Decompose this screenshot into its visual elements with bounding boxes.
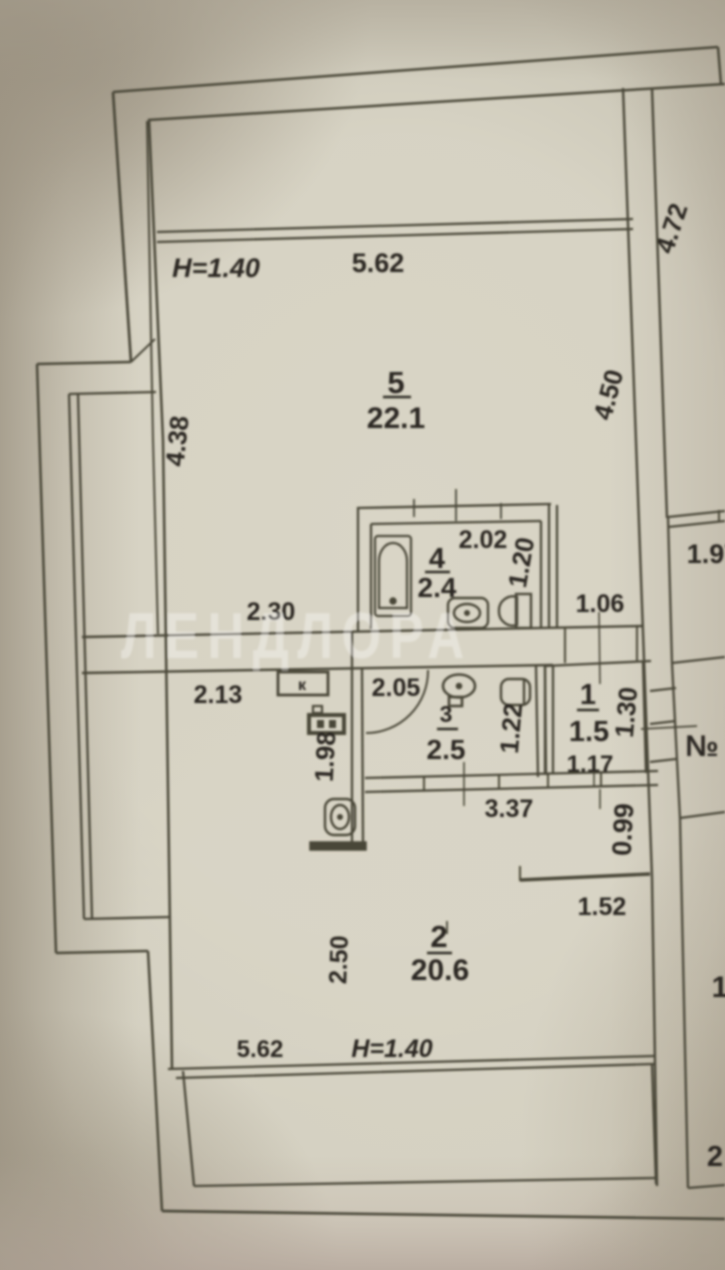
svg-text:2.5: 2.5 — [427, 734, 466, 765]
svg-text:2: 2 — [707, 1141, 723, 1173]
svg-text:1.22: 1.22 — [494, 702, 528, 755]
svg-text:4: 4 — [429, 543, 445, 575]
svg-text:22.1: 22.1 — [367, 402, 425, 435]
svg-text:2.4: 2.4 — [418, 572, 457, 603]
svg-text:2.13: 2.13 — [194, 681, 243, 709]
svg-text:к: к — [298, 677, 307, 694]
svg-text:1.97: 1.97 — [687, 539, 725, 569]
svg-text:4.38: 4.38 — [159, 414, 194, 467]
svg-text:1.52: 1.52 — [578, 893, 627, 921]
svg-text:5: 5 — [387, 365, 404, 400]
svg-text:H=1.40: H=1.40 — [172, 253, 260, 283]
svg-text:H=1.40: H=1.40 — [351, 1035, 432, 1063]
svg-text:1.30: 1.30 — [609, 686, 643, 739]
svg-text:№: № — [685, 730, 718, 763]
svg-text:3.37: 3.37 — [485, 795, 534, 823]
svg-text:ЛЕНДЛОРА: ЛЕНДЛОРА — [121, 600, 473, 672]
svg-text:1.06: 1.06 — [576, 590, 625, 618]
svg-text:0.99: 0.99 — [607, 802, 640, 856]
svg-text:2.02: 2.02 — [459, 526, 508, 554]
svg-text:2: 2 — [430, 919, 447, 954]
svg-text:20.6: 20.6 — [411, 954, 469, 987]
svg-text:2.50: 2.50 — [324, 935, 354, 985]
svg-text:1.17: 1.17 — [567, 751, 614, 778]
svg-text:1: 1 — [580, 679, 596, 711]
svg-text:1.98: 1.98 — [309, 730, 342, 782]
svg-text:5.62: 5.62 — [352, 248, 405, 278]
svg-text:1: 1 — [712, 971, 725, 1004]
svg-text:1.5: 1.5 — [569, 716, 609, 748]
svg-text:3: 3 — [440, 701, 453, 727]
svg-text:2.05: 2.05 — [372, 674, 421, 702]
svg-text:5.62: 5.62 — [237, 1036, 284, 1063]
